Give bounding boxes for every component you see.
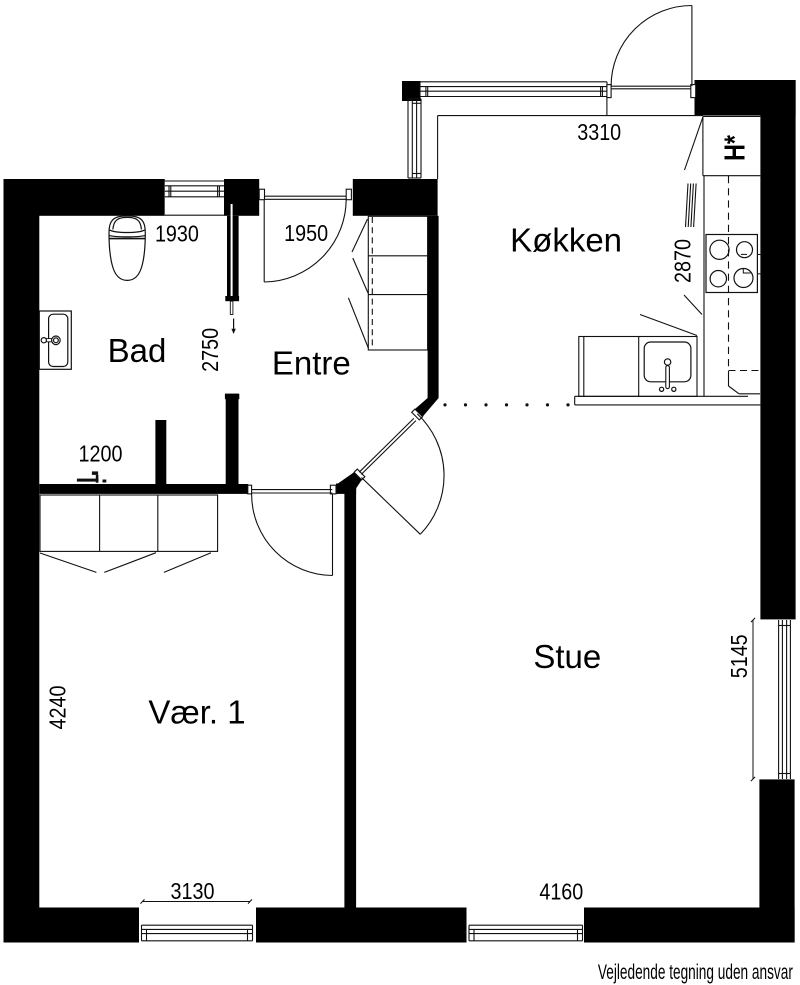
- svg-text:2870: 2870: [669, 239, 696, 283]
- svg-text:2750: 2750: [196, 328, 223, 372]
- svg-text:Stue: Stue: [533, 638, 601, 675]
- svg-text:5145: 5145: [725, 634, 752, 678]
- svg-text:4160: 4160: [539, 878, 583, 905]
- svg-text:Vær. 1: Vær. 1: [148, 694, 245, 731]
- svg-text:3130: 3130: [171, 877, 215, 904]
- svg-text:Vejledende tegning uden ansvar: Vejledende tegning uden ansvar: [598, 960, 793, 984]
- svg-text:4240: 4240: [44, 686, 71, 730]
- svg-text:Bad: Bad: [108, 332, 167, 369]
- svg-text:3310: 3310: [577, 119, 621, 146]
- svg-text:1200: 1200: [79, 440, 123, 467]
- svg-text:Køkken: Køkken: [510, 222, 622, 259]
- svg-text:Entre: Entre: [272, 345, 351, 382]
- svg-text:H*: H*: [718, 134, 751, 160]
- svg-text:1930: 1930: [155, 220, 199, 247]
- svg-text:1950: 1950: [284, 219, 328, 246]
